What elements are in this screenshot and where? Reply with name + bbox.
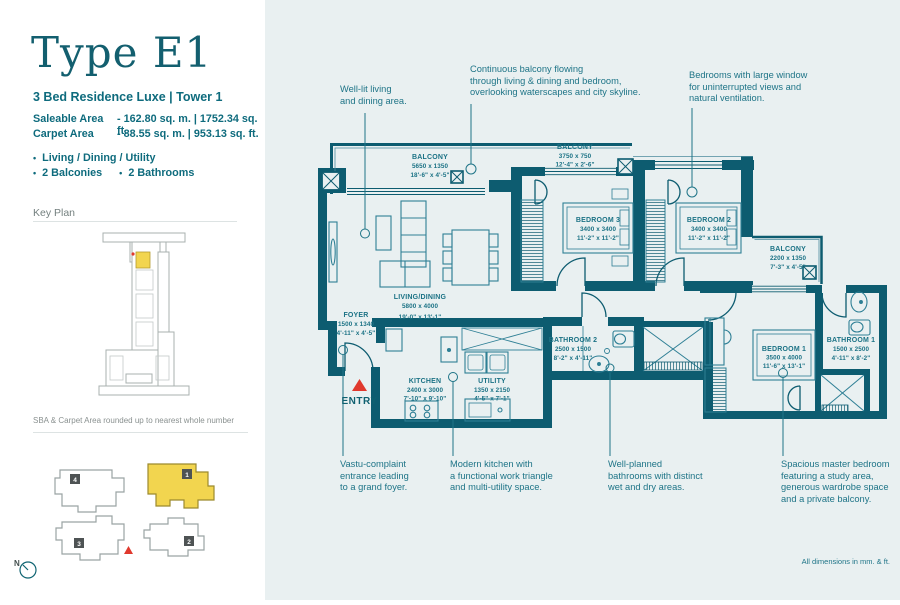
room-label-balcony-bed3: BALCONY 3750 x 750 12'-4" x 2'-6" <box>555 144 594 169</box>
sidebar: Type E1 3 Bed Residence Luxe | Tower 1 S… <box>0 0 265 600</box>
area-footnote: SBA & Carpet Area rounded up to nearest … <box>33 416 234 425</box>
carpet-area-row: Carpet Area - 88.55 sq. m. | 953.13 sq. … <box>33 128 259 140</box>
highlighted-unit <box>136 252 150 268</box>
svg-text:N: N <box>14 559 20 568</box>
feature-bathrooms: 2 Bathrooms <box>128 167 194 179</box>
room-label-balcony-master: BALCONY 2200 x 1350 7'-3" x 4'-5" <box>770 246 807 271</box>
room-label-bedroom-2: BEDROOM 2 3400 x 3400 11'-2" x 11'-2" <box>687 217 731 242</box>
entry-arrow-icon <box>352 379 367 391</box>
svg-text:3400 x 3400: 3400 x 3400 <box>691 226 728 233</box>
divider <box>33 432 248 433</box>
bullet-icon: • <box>119 168 122 178</box>
svg-text:4'-11" x 4'-5": 4'-11" x 4'-5" <box>337 330 376 337</box>
svg-text:BALCONY: BALCONY <box>770 246 806 253</box>
svg-text:18'-6" x 4'-5": 18'-6" x 4'-5" <box>410 172 449 179</box>
svg-text:12'-4" x 2'-6": 12'-4" x 2'-6" <box>555 162 594 169</box>
svg-text:BEDROOM 3: BEDROOM 3 <box>576 217 620 224</box>
bullet-icon: • <box>33 153 36 163</box>
room-label-kitchen: KITCHEN 2400 x 3000 7'-10" x 9'-10" <box>404 378 447 403</box>
feature-line-2: •2 Balconies •2 Bathrooms <box>33 167 194 179</box>
tower-1-highlighted <box>148 464 214 508</box>
callout-kitchen: Modern kitchen with a functional work tr… <box>450 459 553 494</box>
room-label-bedroom-3: BEDROOM 3 3400 x 3400 11'-2" x 11'-2" <box>576 217 620 242</box>
svg-text:3: 3 <box>77 541 81 548</box>
carpet-area-label: Carpet Area <box>33 128 117 140</box>
tower-3-outline <box>56 516 124 560</box>
feature-line-1: •Living / Dining / Utility <box>33 152 156 164</box>
site-entry-marker <box>124 546 133 554</box>
floor-plan-panel: Well-lit living and dining area. Continu… <box>265 0 900 600</box>
svg-text:7'-3" x 4'-5": 7'-3" x 4'-5" <box>770 264 805 271</box>
svg-text:5650 x 1350: 5650 x 1350 <box>412 163 449 170</box>
page-title: Type E1 <box>31 28 212 77</box>
svg-text:2400 x 3000: 2400 x 3000 <box>407 387 444 394</box>
callout-entrance: Vastu-complaint entrance leading to a gr… <box>340 459 409 494</box>
unit-marker-dot <box>131 252 134 255</box>
svg-text:BEDROOM 1: BEDROOM 1 <box>762 346 806 353</box>
svg-text:2: 2 <box>187 539 191 546</box>
room-label-bathroom-1: BATHROOM 1 1500 x 2500 4'-11" x 8'-2" <box>827 337 876 362</box>
svg-text:7'-10" x 9'-10": 7'-10" x 9'-10" <box>404 396 447 403</box>
north-compass-icon: N <box>14 559 36 578</box>
svg-text:BALCONY: BALCONY <box>412 154 448 161</box>
svg-text:2200 x 1350: 2200 x 1350 <box>770 255 807 262</box>
svg-text:2500 x 1500: 2500 x 1500 <box>555 346 592 353</box>
svg-text:UTILITY: UTILITY <box>478 378 506 385</box>
key-plan-heading: Key Plan <box>33 207 75 219</box>
carpet-area-value: - 88.55 sq. m. | 953.13 sq. ft. <box>117 128 259 140</box>
svg-text:BATHROOM 2: BATHROOM 2 <box>549 337 598 344</box>
callout-bedrooms: Bedrooms with large window for uninterru… <box>689 70 807 105</box>
svg-text:11'-2" x 11'-2": 11'-2" x 11'-2" <box>688 235 730 242</box>
svg-text:3400 x 3400: 3400 x 3400 <box>580 226 617 233</box>
dimensions-note: All dimensions in mm. & ft. <box>802 557 890 566</box>
callout-living: Well-lit living and dining area. <box>340 84 407 107</box>
feature-living: Living / Dining / Utility <box>42 152 155 164</box>
callout-balcony: Continuous balcony flowing through livin… <box>470 64 641 99</box>
callout-master: Spacious master bedroom featuring a stud… <box>781 459 890 505</box>
svg-text:11'-2" x 11'-2": 11'-2" x 11'-2" <box>577 235 619 242</box>
svg-text:8'-2" x 4'-11": 8'-2" x 4'-11" <box>554 355 593 362</box>
feature-balconies: 2 Balconies <box>42 167 102 179</box>
svg-text:BEDROOM 2: BEDROOM 2 <box>687 217 731 224</box>
svg-text:KITCHEN: KITCHEN <box>409 378 442 385</box>
svg-text:4: 4 <box>73 477 77 484</box>
svg-text:19'-0" x 13'-1": 19'-0" x 13'-1" <box>399 314 442 321</box>
room-label-bathroom-2: BATHROOM 2 2500 x 1500 8'-2" x 4'-11" <box>549 337 598 362</box>
room-label-bedroom-1: BEDROOM 1 3500 x 4000 11'-6" x 13'-1" <box>762 346 806 370</box>
tower-2-outline <box>144 518 204 556</box>
room-label-balcony-main: BALCONY 5650 x 1350 18'-6" x 4'-5" <box>410 154 449 179</box>
room-label-utility: UTILITY 1350 x 2150 4'-5" x 7'-1" <box>474 378 511 403</box>
svg-text:BALCONY: BALCONY <box>557 144 593 151</box>
svg-text:1500 x 1340: 1500 x 1340 <box>338 321 375 328</box>
room-labels: BALCONY 5650 x 1350 18'-6" x 4'-5" BALCO… <box>337 144 876 403</box>
svg-text:LIVING/DINING: LIVING/DINING <box>394 294 447 301</box>
svg-text:1350 x 2150: 1350 x 2150 <box>474 387 511 394</box>
bullet-icon: • <box>33 168 36 178</box>
unit-subtitle: 3 Bed Residence Luxe | Tower 1 <box>33 90 222 104</box>
svg-text:4'-5" x 7'-1": 4'-5" x 7'-1" <box>474 396 509 403</box>
svg-text:5800 x 4000: 5800 x 4000 <box>402 303 439 310</box>
callout-bathrooms: Well-planned bathrooms with distinct wet… <box>608 459 703 494</box>
key-plan-diagram <box>98 230 193 408</box>
room-label-foyer: FOYER 1500 x 1340 4'-11" x 4'-5" <box>337 312 376 337</box>
room-label-living-dining: LIVING/DINING 5800 x 4000 19'-0" x 13'-1… <box>394 294 447 321</box>
entry-label: ENTRY <box>341 396 377 407</box>
svg-text:FOYER: FOYER <box>343 312 368 319</box>
svg-text:BATHROOM 1: BATHROOM 1 <box>827 337 876 344</box>
tower-4-outline <box>55 470 124 512</box>
site-plan: 1 2 3 4 N <box>0 440 265 600</box>
svg-text:3500 x 4000: 3500 x 4000 <box>766 355 803 362</box>
svg-text:11'-6" x 13'-1": 11'-6" x 13'-1" <box>763 363 805 370</box>
svg-text:4'-11" x 8'-2": 4'-11" x 8'-2" <box>832 355 871 362</box>
svg-text:3750 x 750: 3750 x 750 <box>559 153 592 160</box>
svg-text:1: 1 <box>185 472 189 479</box>
divider <box>33 221 237 222</box>
svg-text:1500 x 2500: 1500 x 2500 <box>833 346 870 353</box>
